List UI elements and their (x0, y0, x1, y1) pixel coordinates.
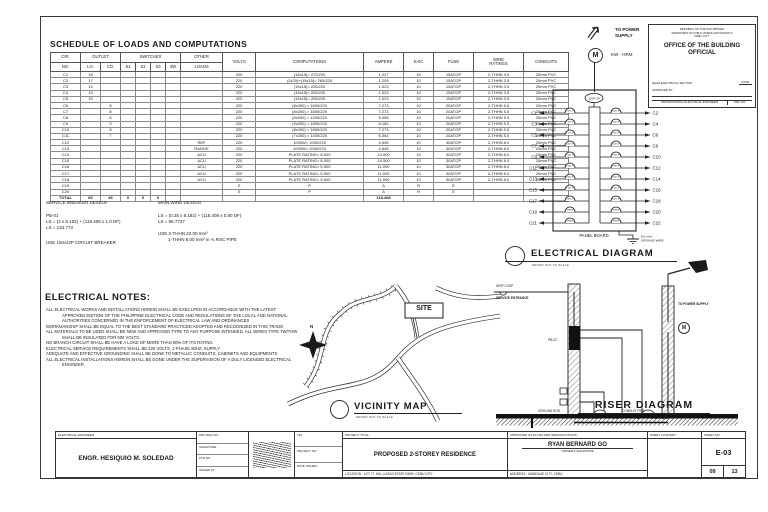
circuit-label: C22 (653, 221, 662, 226)
titleblock-field: PRC REG NO. : (197, 432, 248, 444)
to-power-supply-label: TO POWER SUPPLY (615, 27, 651, 39)
breaker-rating: 20AT 2P (566, 143, 575, 146)
breaker-rating: 30AT 2P (612, 176, 621, 179)
engineer-column: ELECTRICAL ENGINEER ENGR. HESIQUIO M. SO… (56, 432, 196, 477)
drawing-sheet: SCHEDULE OF LOADS AND COMPUTATIONS CIR. … (0, 0, 768, 512)
engineer-seal (253, 442, 291, 468)
page-number: 09 (702, 466, 724, 477)
breaker-rating: SPARE (613, 209, 621, 212)
col-kaic: KAIC (404, 53, 434, 72)
col-computations: COMPUTATIONS (256, 53, 364, 72)
circuit-label: C5 (531, 133, 537, 138)
col-wire: WIRE RATINGS (474, 53, 524, 72)
titleblock-field: PTR NO. : (197, 455, 248, 467)
circuit-label: C16 (653, 188, 662, 193)
detail-bubble-icon (330, 400, 349, 419)
titleblock-field: SIGNATURE : (197, 444, 248, 456)
page-count: 13 (724, 466, 745, 477)
breaker-rating: 15AT 2P (566, 132, 575, 135)
col-cir: CIR. (51, 53, 81, 63)
circuit-label: C13 (529, 177, 538, 182)
seal-column (248, 432, 294, 477)
breaker-rating: 15AT 2P (566, 121, 575, 124)
riser-service-entrance-label: SERVICE ENTRANCE (496, 296, 529, 300)
circuit-label: C20 (653, 210, 662, 215)
circuit-label: C2 (653, 111, 659, 116)
circuit-label: C12 (653, 166, 662, 171)
col-ampere: AMPERE (364, 53, 404, 72)
circuit-label: C11 (529, 166, 537, 171)
riser-power-supply-label: TO POWER SUPPLY (678, 302, 738, 306)
breaker-rating: 20AT 2P (612, 154, 621, 157)
schedule-cell (474, 195, 524, 201)
circuit-label: C9 (531, 155, 537, 160)
col-switches: SWITCHES (121, 53, 181, 63)
schedule-row: TOTAL8046000118.408 (51, 195, 569, 201)
circuit-label: C21 (529, 221, 538, 226)
main-breaker-label: 150AT 2P (588, 96, 600, 100)
breaker-rating: 30AT 2P (612, 198, 621, 201)
circuit-label: C17 (529, 199, 538, 204)
electrical-notes: ALL ELECTRICAL WORKS AND INSTALLATIONS H… (46, 307, 298, 368)
titleblock-field: DATE ISSUED : (295, 463, 342, 477)
project-title: PROPOSED 2-STOREY RESIDENCE (343, 439, 507, 470)
sheet-content-column: SHEET CONTENT (647, 432, 701, 477)
circuit-label: C1 (531, 111, 537, 116)
schedule-cell: 0 (136, 195, 151, 201)
schedule-cell (404, 195, 434, 201)
project-column: PROJECT TITLE : PROPOSED 2-STOREY RESIDE… (342, 432, 507, 477)
breaker-rating: 30AT 2P (612, 165, 621, 168)
circuit-label: C3 (531, 122, 537, 127)
breaker-rating: SPARE (567, 209, 575, 212)
electrical-note-item: ALL ELECTRICAL WORKS AND INSTALLATIONS H… (46, 307, 298, 324)
breaker-rating: 15AT 2P (612, 110, 621, 113)
col-other: OTHER (181, 53, 223, 63)
breaker-rating: 20AT 2P (566, 165, 575, 168)
engineer-name: ENGR. HESIQUIO M. SOLEDAD (56, 439, 196, 477)
vicinity-map (286, 246, 504, 424)
title-block: ELECTRICAL ENGINEER ENGR. HESIQUIO M. SO… (55, 431, 746, 478)
ground-wire-label: GROUND WIRE (641, 238, 664, 242)
schedule-cell (256, 195, 364, 201)
site-label: SITE (405, 305, 443, 312)
kwh-meter-symbol: M (588, 48, 603, 63)
breaker-rating: SPARE (567, 220, 575, 223)
service-breaker-design: SERVICE BREAKER DESIGN PB-01 LS = (2 x 8… (46, 200, 120, 246)
breaker-rating: 30AT 2P (612, 187, 621, 190)
sheet-number-column: SHEET NO. E-03 09 13 (701, 432, 745, 477)
breaker-rating: 30AT 2P (566, 198, 575, 201)
circuit-label: C7 (531, 144, 537, 149)
breaker-rating: 30AT 2P (566, 176, 575, 179)
col-conduits: CONDUITS (524, 53, 569, 72)
breaker-rating: 20AT 2P (612, 132, 621, 135)
circuit-label: C15 (529, 188, 538, 193)
circuit-label: C6 (653, 133, 659, 138)
owner-column: APPROVED AS PLANS AND SPECIFICATIONS : R… (507, 432, 647, 477)
riser-meter-symbol: M (678, 322, 690, 334)
license-fields: PRC REG NO. :SIGNATURE :PTR NO. :ISSUED … (196, 432, 248, 477)
circuit-label: C14 (653, 177, 662, 182)
schedule-cell: 118.408 (364, 195, 404, 201)
panel-board-diagram: 150AT 2P15AT 2PC115AT 2PC215AT 2PC315AT … (523, 84, 683, 252)
breaker-rating: 20AT 2P (612, 143, 621, 146)
power-supply-arrow-icon: ⇗ (583, 19, 603, 46)
main-wire-design: MAIN WIRE DESIGN LS = (0.25 x 8.182) + (… (158, 200, 241, 243)
breaker-rating: 20AT 2P (566, 154, 575, 157)
col-fuse: FUSE (434, 53, 474, 72)
notes-title: ELECTRICAL NOTES: (45, 292, 150, 303)
sheet-number: E-03 (702, 439, 745, 465)
panel-board-label: PANEL BOARD (579, 233, 608, 238)
circuit-label: C19 (529, 210, 538, 215)
titleblock-field: ISSUED AT : (197, 467, 248, 478)
reference-fields: TIN :PROJECT NO. :DATE ISSUED : (294, 432, 342, 477)
project-location: LOCATION : LOT 77, MA. LUISA ESTATE PARK… (343, 470, 507, 477)
titleblock-field: TIN : (295, 432, 342, 447)
schedule-title: SCHEDULE OF LOADS AND COMPUTATIONS (50, 39, 247, 49)
kwh-meter-label: KW - HRM (611, 52, 633, 58)
schedule-table: CIR. OUTLET SWITCHES OTHER VOLTS COMPUTA… (50, 52, 569, 202)
breaker-rating: 15AT 2P (566, 110, 575, 113)
riser-drip-loop-label: DRIP LOOP (496, 284, 513, 288)
circuit-label: C10 (653, 155, 662, 160)
schedule-cell (434, 195, 474, 201)
compass-north-label: N (310, 324, 313, 329)
circuit-label: C4 (653, 122, 659, 127)
circuit-label: C18 (653, 199, 662, 204)
electrical-note-item: ALL MATERIALS TO BE USED SHALL BE NEW AN… (46, 329, 298, 340)
circuit-label: C8 (653, 144, 659, 149)
breaker-rating: 30AT 2P (566, 187, 575, 190)
titleblock-field: PROJECT NO. : (295, 447, 342, 462)
col-outlet: OUTLET (81, 53, 121, 63)
riser-panel-label: PB-01 (548, 338, 557, 342)
breaker-rating: SPARE (613, 220, 621, 223)
electrical-note-item: ALL ELECTRICAL INSTALLATIONS HEREIN SHAL… (46, 357, 298, 368)
owner-address: ADDRESS : MANDAUE CITY, CEBU (508, 470, 647, 477)
schedule-cell: 0 (121, 195, 136, 201)
owner-name: RYAN BERNARD GO (522, 442, 633, 449)
col-volts: VOLTS (223, 53, 256, 72)
riser-ground-rod-label: GROUND ROD (538, 409, 560, 413)
breaker-rating: 15AT 2P (612, 121, 621, 124)
